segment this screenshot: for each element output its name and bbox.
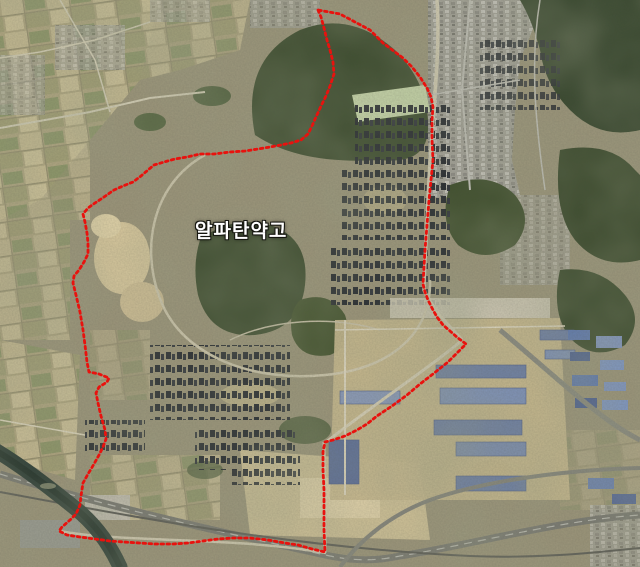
satellite-map: 알파탄약고 — [0, 0, 640, 567]
depot-label: 알파탄약고 — [195, 216, 287, 243]
texture-overlay — [0, 0, 640, 567]
satellite-basemap — [0, 0, 640, 567]
